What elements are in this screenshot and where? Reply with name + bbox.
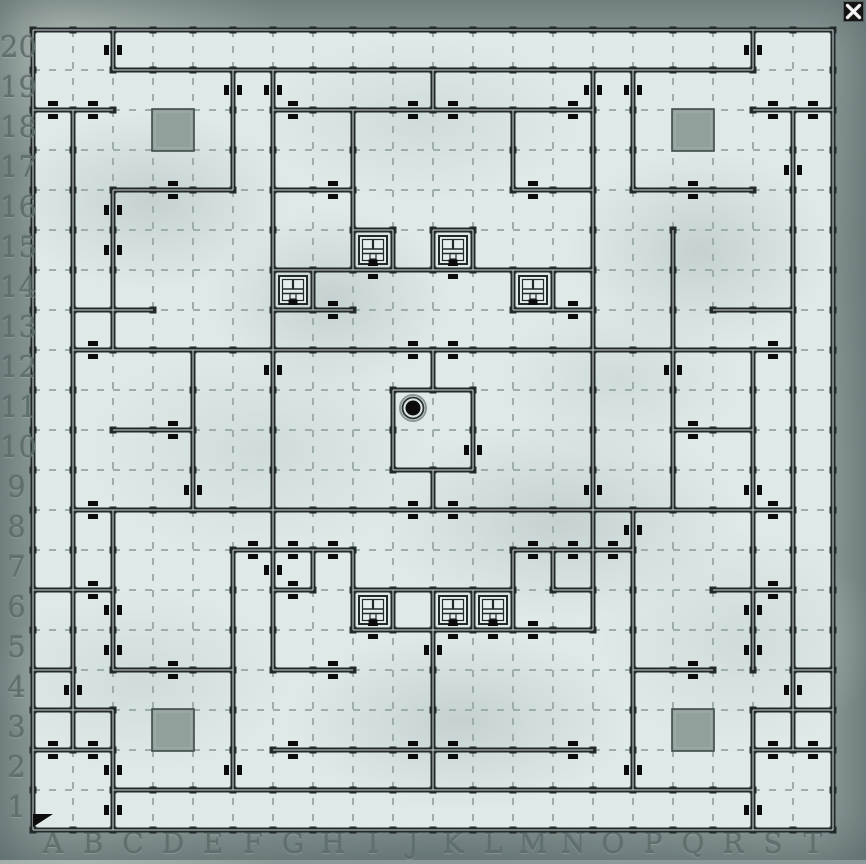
- col-label-N: N: [553, 828, 593, 860]
- row-label-19: 19: [0, 67, 33, 107]
- stairs-icon: [359, 236, 387, 265]
- row-label-9: 9: [0, 467, 33, 507]
- stairs-icon: [279, 276, 307, 305]
- col-label-A: A: [33, 828, 73, 860]
- col-label-E: E: [193, 828, 233, 860]
- col-label-G: G: [273, 828, 313, 860]
- close-button[interactable]: [843, 1, 864, 22]
- col-label-C: C: [113, 828, 153, 860]
- row-label-20: 20: [0, 27, 33, 67]
- row-label-2: 2: [0, 747, 33, 787]
- col-label-I: I: [353, 828, 393, 860]
- stairs-icon: [439, 596, 467, 625]
- col-label-D: D: [153, 828, 193, 860]
- row-label-11: 11: [0, 387, 33, 427]
- col-label-O: O: [593, 828, 633, 860]
- row-label-1: 1: [0, 787, 33, 827]
- row-label-5: 5: [0, 627, 33, 667]
- close-icon: [844, 2, 863, 21]
- row-label-14: 14: [0, 267, 33, 307]
- row-label-4: 4: [0, 667, 33, 707]
- stairs-icon: [359, 596, 387, 625]
- col-label-B: B: [73, 828, 113, 860]
- col-label-T: T: [793, 828, 833, 860]
- col-label-S: S: [753, 828, 793, 860]
- col-label-F: F: [233, 828, 273, 860]
- game-map-screen: { "window": { "close_button": { "symbol"…: [0, 0, 866, 860]
- row-label-12: 12: [0, 347, 33, 387]
- row-label-10: 10: [0, 427, 33, 467]
- stairs-icon: [479, 596, 507, 625]
- row-label-15: 15: [0, 227, 33, 267]
- col-label-M: M: [513, 828, 553, 860]
- row-label-18: 18: [0, 107, 33, 147]
- row-label-17: 17: [0, 147, 33, 187]
- row-label-13: 13: [0, 307, 33, 347]
- row-label-7: 7: [0, 547, 33, 587]
- dungeon-map: [0, 0, 866, 860]
- col-label-K: K: [433, 828, 473, 860]
- well-marker: [400, 395, 426, 421]
- col-label-L: L: [473, 828, 513, 860]
- row-label-6: 6: [0, 587, 33, 627]
- stairs-icon: [439, 236, 467, 265]
- row-label-3: 3: [0, 707, 33, 747]
- col-label-R: R: [713, 828, 753, 860]
- row-label-16: 16: [0, 187, 33, 227]
- col-label-P: P: [633, 828, 673, 860]
- col-label-H: H: [313, 828, 353, 860]
- stairs-icon: [519, 276, 547, 305]
- col-label-J: J: [393, 828, 433, 860]
- row-label-8: 8: [0, 507, 33, 547]
- col-label-Q: Q: [673, 828, 713, 860]
